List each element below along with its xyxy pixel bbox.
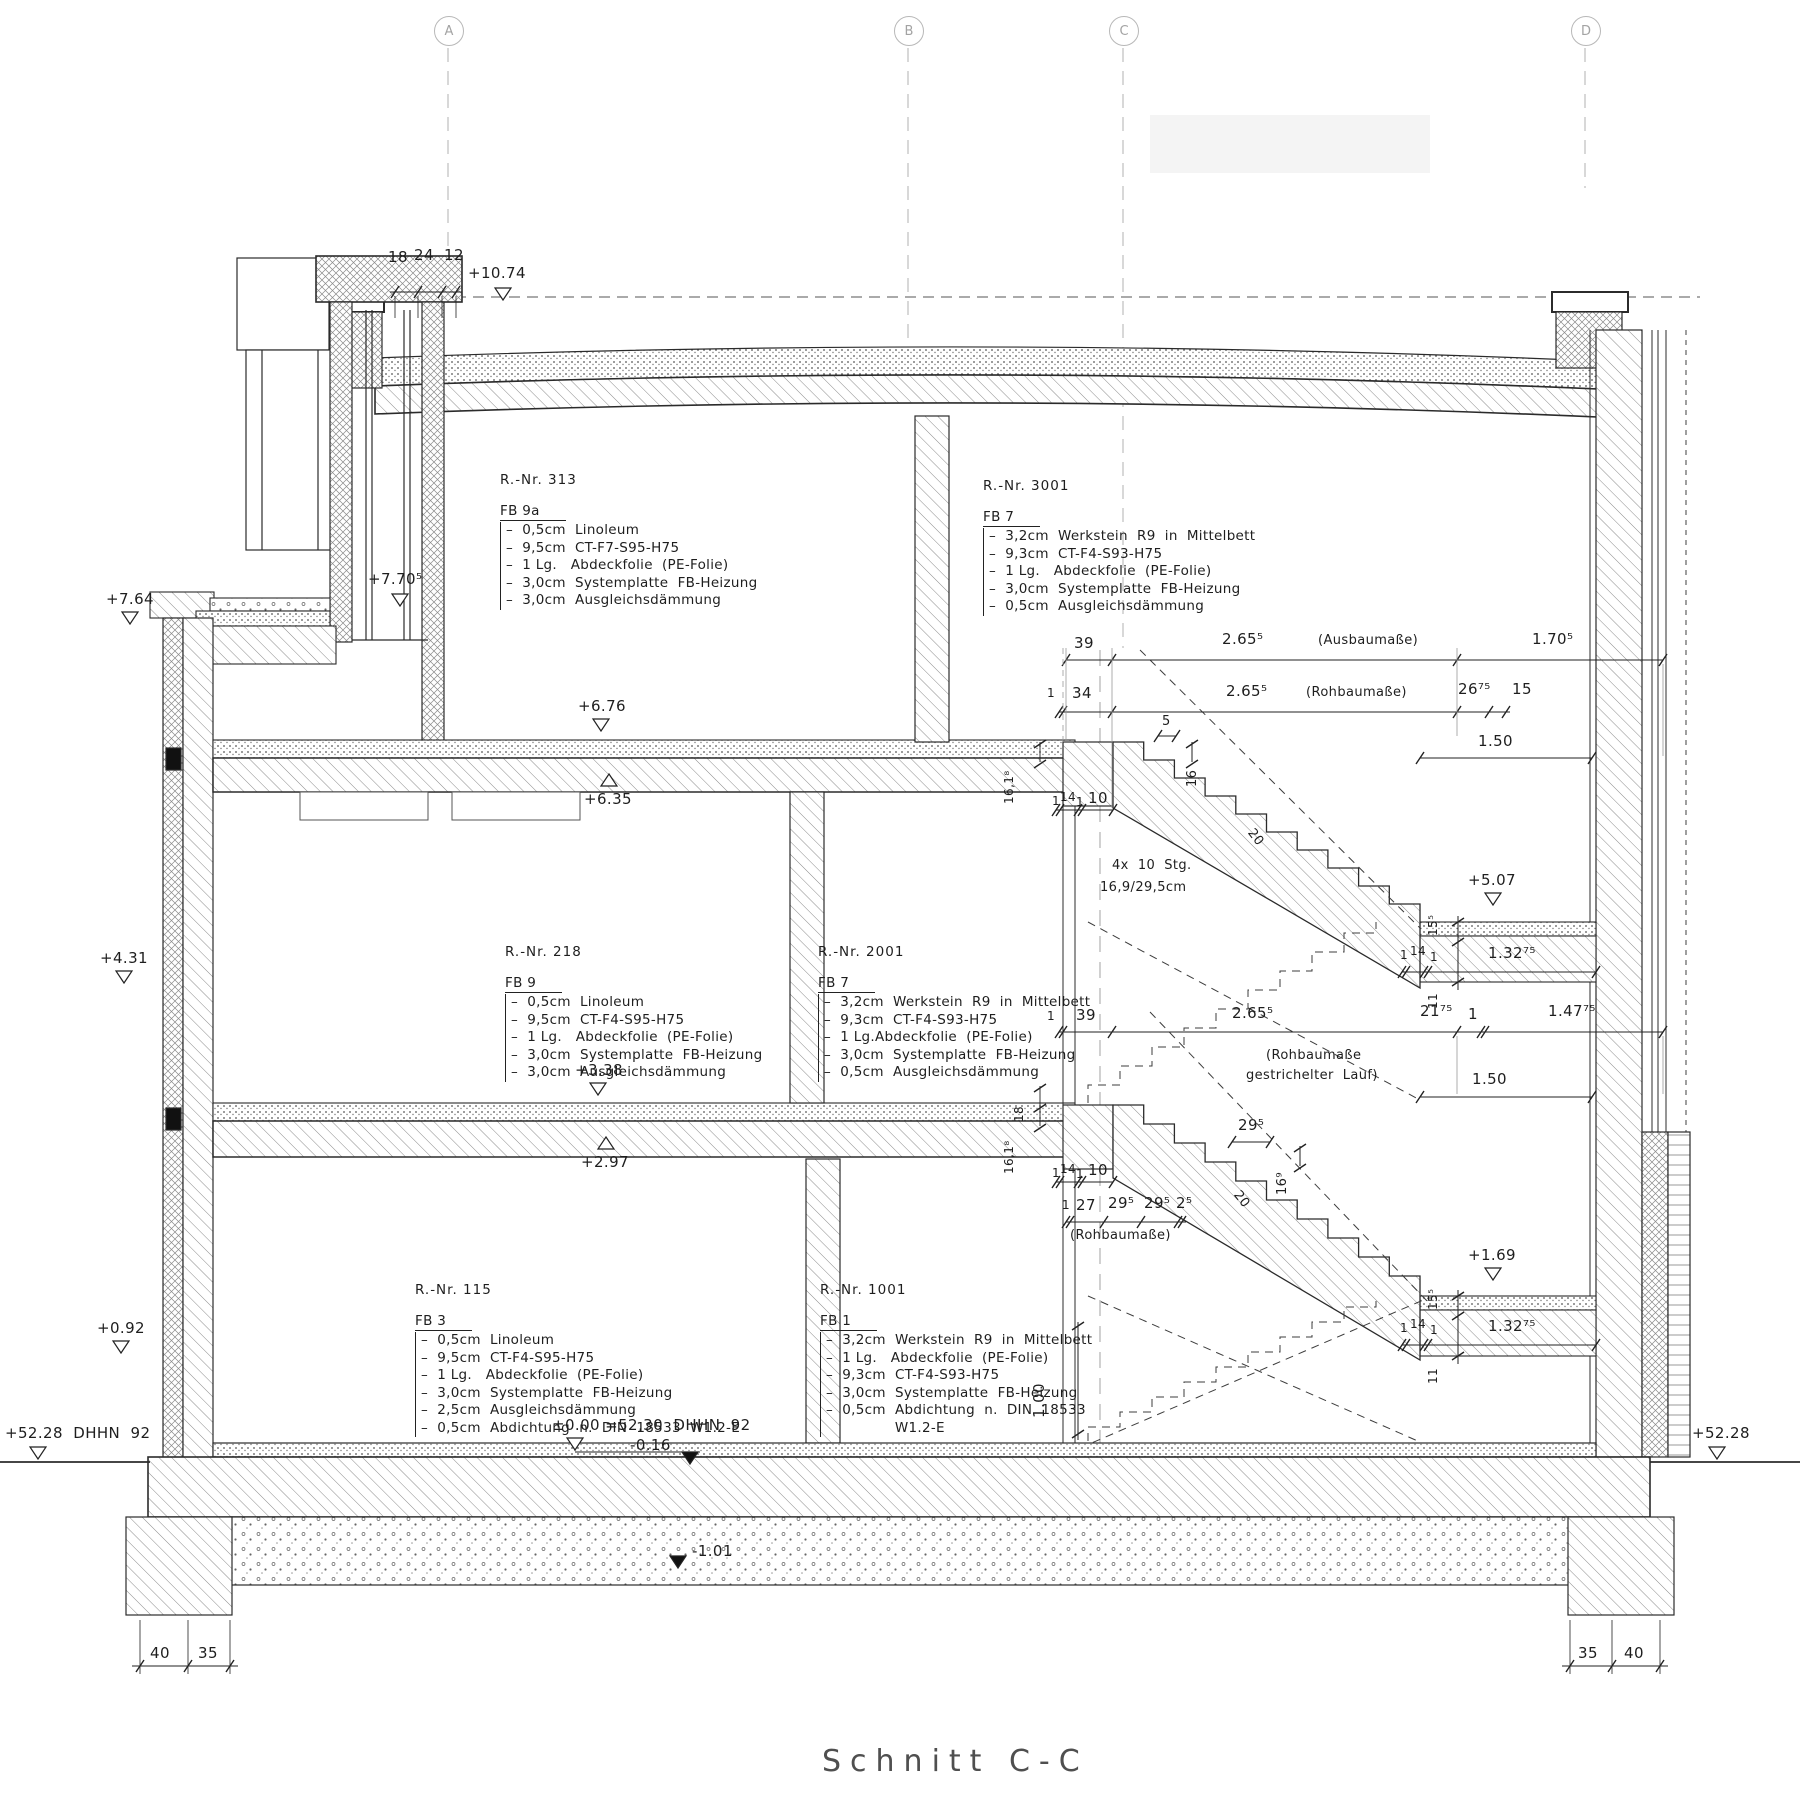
elevation-431: +4.31 xyxy=(100,949,148,967)
dim-18: 18 xyxy=(388,248,408,266)
dim-bl35: 35 xyxy=(198,1644,218,1662)
room-number: R.-Nr. 1001 xyxy=(820,1282,1092,1300)
grid-bubble-b: B xyxy=(894,16,924,46)
room-number: R.-Nr. 3001 xyxy=(983,478,1255,496)
layer: – 3,0cm Systemplatte FB-Heizung xyxy=(506,575,757,593)
layer: – 3,0cm Ausgleichsdämmung xyxy=(506,592,757,610)
elevation-092: +0.92 xyxy=(97,1319,145,1337)
elevation-635: +6.35 xyxy=(584,790,632,808)
sheet-title: Schnitt C-C xyxy=(822,1744,1089,1779)
dim-u1b: 1 xyxy=(1076,795,1084,809)
dim-c1b: 1 xyxy=(1430,950,1438,964)
elevation-676: +6.76 xyxy=(578,697,626,715)
layer: – 0,5cm Linoleum xyxy=(511,994,762,1012)
dim-run295a: 29⁵ xyxy=(1108,1194,1134,1212)
dim-rohbau-34: 34 xyxy=(1072,684,1092,702)
room-313-annotation: R.-Nr. 313 FB 9a – 0,5cm Linoleum – 9,5c… xyxy=(500,472,757,610)
dim-l14a: 14 xyxy=(1060,1162,1076,1176)
layer: – 3,0cm Systemplatte FB-Heizung xyxy=(826,1385,1092,1403)
room-2001-annotation: R.-Nr. 2001 FB 7 – 3,2cm Werkstein R9 in… xyxy=(818,944,1090,1082)
dim-rohbau-note: (Rohbaumaße) xyxy=(1306,685,1407,700)
dim-l10a: 10 xyxy=(1088,1161,1108,1179)
floor-buildup-code: FB 7 xyxy=(818,975,875,994)
layer: – 3,0cm Ausgleichsdämmung xyxy=(511,1064,762,1082)
layer: – 3,0cm Systemplatte FB-Heizung xyxy=(421,1385,740,1403)
layer: – 0,5cm Ausgleichsdämmung xyxy=(989,598,1255,616)
dim-bl40: 40 xyxy=(150,1644,170,1662)
layer: – 9,3cm CT-F4-S93-H75 xyxy=(824,1012,1090,1030)
floor-buildup-layers: – 0,5cm Linoleum – 9,5cm CT-F7-S95-H75 –… xyxy=(500,522,757,610)
dim-runnote: (Rohbaumaße) xyxy=(1070,1228,1171,1243)
grid-label-d: D xyxy=(1581,24,1591,39)
layer: – 1 Lg. Abdeckfolie (PE-Folie) xyxy=(826,1350,1092,1368)
layer: – 9,5cm CT-F4-S95-H75 xyxy=(421,1350,740,1368)
dim-s169: 16⁹ xyxy=(1275,1172,1290,1195)
layer: – 0,5cm Abdichtung n. DIN 18533 xyxy=(826,1402,1092,1420)
floor-buildup-code: FB 3 xyxy=(415,1313,472,1332)
room-number: R.-Nr. 2001 xyxy=(818,944,1090,962)
layer: – 1 Lg. Abdeckfolie (PE-Folie) xyxy=(421,1367,740,1385)
dim-11-upper: 11 xyxy=(1426,993,1440,1009)
dim-1618-upper: 16,1⁸ xyxy=(1002,770,1016,804)
dim-1618-lower: 16,1⁸ xyxy=(1002,1140,1016,1174)
layer: – 1 Lg. Abdeckfolie (PE-Folie) xyxy=(511,1029,762,1047)
dim-11-lower: 11 xyxy=(1426,1368,1440,1384)
dim-24: 24 xyxy=(414,246,434,264)
dim-c1a: 1 xyxy=(1400,948,1408,962)
dim-u10a: 10 xyxy=(1088,789,1108,807)
dim-mid-14775: 1.47⁷⁵ xyxy=(1548,1002,1596,1020)
room-number: R.-Nr. 218 xyxy=(505,944,762,962)
room-218-annotation: R.-Nr. 218 FB 9 – 0,5cm Linoleum – 9,5cm… xyxy=(505,944,762,1082)
floor-buildup-layers: – 3,2cm Werkstein R9 in Mittelbett – 9,3… xyxy=(818,994,1090,1082)
dim-br35: 35 xyxy=(1578,1644,1598,1662)
dim-155-lower: 15⁵ xyxy=(1426,1289,1440,1310)
dormer xyxy=(237,256,462,744)
elevation-m101: -1.01 xyxy=(692,1542,733,1560)
dim-run27: 27 xyxy=(1076,1196,1096,1214)
dim-s295: 29⁵ xyxy=(1238,1116,1264,1134)
layer: – 9,3cm CT-F4-S93-H75 xyxy=(826,1367,1092,1385)
floor-buildup-layers: – 3,2cm Werkstein R9 in Mittelbett – 1 L… xyxy=(820,1332,1092,1437)
room-3001-annotation: R.-Nr. 3001 FB 7 – 3,2cm Werkstein R9 in… xyxy=(983,478,1255,616)
dim-rohbau-1: 1 xyxy=(1047,686,1055,700)
roof-slab xyxy=(375,347,1620,418)
dim-155-upper: 15⁵ xyxy=(1426,915,1440,936)
dim-18: 18 xyxy=(1012,1106,1026,1122)
right-exterior-wall xyxy=(1590,330,1690,1457)
dim-l1a: 1 xyxy=(1052,1166,1060,1180)
layer: – 2,5cm Ausgleichsdämmung xyxy=(421,1402,740,1420)
floor-buildup-code: FB 9a xyxy=(500,503,566,522)
layer: – 0,5cm Ausgleichsdämmung xyxy=(824,1064,1090,1082)
grid-bubble-c: C xyxy=(1109,16,1139,46)
dim-rohbau-265: 2.65⁵ xyxy=(1226,682,1267,700)
dim-mid-note1: (Rohbaumaße xyxy=(1266,1048,1361,1063)
room-115-annotation: R.-Nr. 115 FB 3 – 0,5cm Linoleum – 9,5cm… xyxy=(415,1282,740,1437)
dim-rohbau-15: 15 xyxy=(1512,680,1532,698)
grid-bubble-d: D xyxy=(1571,16,1601,46)
floor-buildup-layers: – 0,5cm Linoleum – 9,5cm CT-F4-S95-H75 –… xyxy=(505,994,762,1082)
elevation-1074: +10.74 xyxy=(468,264,526,282)
dim-run25: 2⁵ xyxy=(1176,1194,1192,1212)
dim-c14b: 14 xyxy=(1410,1317,1426,1331)
dim-l1b: 1 xyxy=(1076,1167,1084,1181)
layer: – 0,5cm Abdichtung n. DIN 18533 W1.2-E xyxy=(421,1420,740,1438)
dim-mid-note2: gestrichelter Lauf) xyxy=(1246,1068,1378,1083)
floor-level3 xyxy=(213,740,1075,820)
stair-note-1: 4x 10 Stg. xyxy=(1112,858,1192,873)
grid-bubble-a: A xyxy=(434,16,464,46)
dim-c1c: 1 xyxy=(1400,1321,1408,1335)
dim-br40: 40 xyxy=(1624,1644,1644,1662)
dim-mid-1b: 1 xyxy=(1468,1005,1478,1023)
layer: – 1 Lg.Abdeckfolie (PE-Folie) xyxy=(824,1029,1090,1047)
room-number: R.-Nr. 313 xyxy=(500,472,757,490)
grid-label-b: B xyxy=(905,24,914,39)
dim-u14a: 14 xyxy=(1060,790,1076,804)
floor-buildup-code: FB 9 xyxy=(505,975,562,994)
left-exterior-wall xyxy=(163,618,213,1468)
dim-c1d: 1 xyxy=(1430,1323,1438,1337)
dim-12: 12 xyxy=(444,246,464,264)
dim-150-lower: 1.50 xyxy=(1472,1070,1507,1088)
dim-13275-lower: 1.32⁷⁵ xyxy=(1488,1317,1536,1335)
layer: – 1 Lg. Abdeckfolie (PE-Folie) xyxy=(506,557,757,575)
elevation-770: +7.70⁵ xyxy=(368,570,422,588)
floor-level2 xyxy=(213,1103,1075,1157)
elevation-507: +5.07 xyxy=(1468,871,1516,889)
dim-run295b: 29⁵ xyxy=(1144,1194,1170,1212)
elevation-297: +2.97 xyxy=(581,1153,629,1171)
layer: – 3,2cm Werkstein R9 in Mittelbett xyxy=(824,994,1090,1012)
layer: – 3,2cm Werkstein R9 in Mittelbett xyxy=(989,528,1255,546)
layer: – 3,2cm Werkstein R9 in Mittelbett xyxy=(826,1332,1092,1350)
ground-floor-foundation xyxy=(0,1443,1800,1615)
grid-label-c: C xyxy=(1119,24,1128,39)
layer: – 9,5cm CT-F7-S95-H75 xyxy=(506,540,757,558)
scan-artifact xyxy=(1150,115,1430,173)
datum-right: +52.28 xyxy=(1692,1424,1750,1442)
dim-c14a: 14 xyxy=(1410,944,1426,958)
grid-label-a: A xyxy=(445,24,454,39)
architectural-section-sheet: A B C D 18 24 12 +10.74 +7.70⁵ +7.64 +6.… xyxy=(0,0,1800,1800)
floor-buildup-code: FB 1 xyxy=(820,1313,877,1332)
section-drawing xyxy=(0,0,1800,1800)
stair-note-2: 16,9/29,5cm xyxy=(1100,880,1186,895)
layer: – 1 Lg. Abdeckfolie (PE-Folie) xyxy=(989,563,1255,581)
floor-buildup-layers: – 0,5cm Linoleum – 9,5cm CT-F4-S95-H75 –… xyxy=(415,1332,740,1437)
dim-13275-upper: 1.32⁷⁵ xyxy=(1488,944,1536,962)
dim-s5: 5 xyxy=(1162,714,1171,729)
layer: – 3,0cm Systemplatte FB-Heizung xyxy=(989,581,1255,599)
elevation-m016: -0.16 xyxy=(630,1436,671,1454)
dim-rohbau-2675: 26⁷⁵ xyxy=(1458,680,1491,698)
floor-buildup-code: FB 7 xyxy=(983,509,1040,528)
layer: – 0,5cm Linoleum xyxy=(421,1332,740,1350)
dim-ausbau-170: 1.70⁵ xyxy=(1532,630,1573,648)
layer: W1.2-E xyxy=(826,1420,1092,1438)
layer: – 9,5cm CT-F4-S95-H75 xyxy=(511,1012,762,1030)
room-1001-annotation: R.-Nr. 1001 FB 1 – 3,2cm Werkstein R9 in… xyxy=(820,1282,1092,1437)
layer: – 3,0cm Systemplatte FB-Heizung xyxy=(511,1047,762,1065)
elevation-764: +7.64 xyxy=(106,590,154,608)
datum-left: +52.28 DHHN 92 xyxy=(5,1424,150,1442)
dim-u1a: 1 xyxy=(1052,794,1060,808)
dim-ausbau-note: (Ausbaumaße) xyxy=(1318,633,1418,648)
dim-run1: 1 xyxy=(1062,1198,1070,1212)
dim-s16: 16 xyxy=(1185,770,1200,787)
layer: – 0,5cm Linoleum xyxy=(506,522,757,540)
elevation-169: +1.69 xyxy=(1468,1246,1516,1264)
layer: – 3,0cm Systemplatte FB-Heizung xyxy=(824,1047,1090,1065)
room-number: R.-Nr. 115 xyxy=(415,1282,740,1300)
floor-buildup-layers: – 3,2cm Werkstein R9 in Mittelbett – 9,3… xyxy=(983,528,1255,616)
dim-ausbau-265: 2.65⁵ xyxy=(1222,630,1263,648)
dim-mid-265: 2.65⁵ xyxy=(1232,1004,1273,1022)
dim-ausbau-39: 39 xyxy=(1074,634,1094,652)
dim-150-upper: 1.50 xyxy=(1478,732,1513,750)
layer: – 9,3cm CT-F4-S93-H75 xyxy=(989,546,1255,564)
